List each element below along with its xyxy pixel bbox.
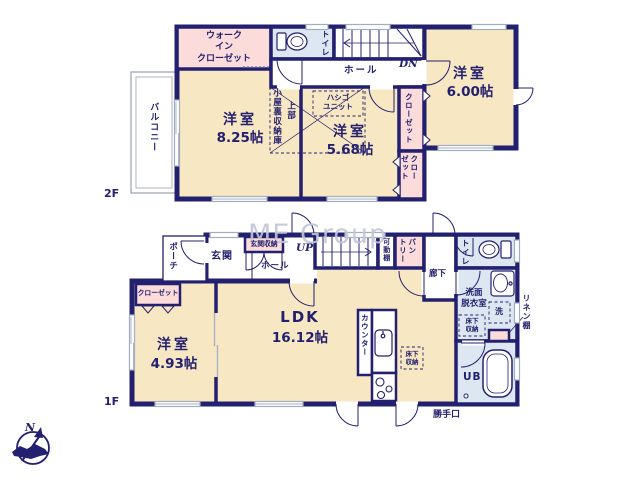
closet-lower-2f-label: クロー ゼット	[400, 155, 419, 197]
room-600-size: 6.00帖	[426, 84, 514, 101]
wic-label: ウォーク イン クローゼット	[181, 31, 267, 65]
washroom-label: 洗面 脱衣室	[455, 288, 493, 309]
counter-label: カウンター	[360, 314, 369, 372]
entrance-storage-label: 玄関収納	[246, 240, 282, 248]
attic-storage-label2: 上部	[285, 101, 296, 131]
linen-shelf	[489, 330, 509, 341]
compass-n-label: N	[24, 421, 36, 434]
pantry-label: パン トリー	[398, 238, 417, 267]
ldk-size: 16.12帖	[251, 330, 349, 347]
room-493-size: 4.93帖	[130, 356, 218, 373]
kitchen-sink-icon	[375, 330, 392, 356]
ldk-name: LDK	[256, 308, 344, 327]
floor1-label: 1F	[104, 395, 119, 409]
attic-storage-label: 小屋裏収納庫	[271, 88, 282, 152]
underfloor-wash-label: 床下 収納	[459, 317, 485, 333]
corridor	[424, 235, 456, 300]
movable-shelf-label: 可動棚	[382, 238, 391, 266]
unit-bath-label: UB	[463, 371, 482, 384]
hall-2f-label: ホール	[344, 65, 379, 77]
room-493-name: 洋室	[130, 337, 218, 355]
linen-shelf-label: リネン棚	[521, 294, 531, 352]
porch-label: ポーチ	[167, 242, 178, 278]
closet-1f-label: クローゼット	[137, 289, 179, 297]
room-568-name: 洋室	[306, 124, 394, 142]
toilet-icon-2f	[277, 33, 307, 50]
ladder-unit-label: ハシゴ ユニット	[314, 93, 362, 112]
toilet-1f-label: トイレ	[460, 239, 470, 267]
floor-plan-page: N ME Group 2F バルコニー ウォーク イン クローゼット トイレ ホ…	[0, 0, 640, 480]
room-568-size: 5.68帖	[306, 142, 394, 159]
corridor-label: 廊下	[429, 269, 446, 280]
toilet-2f-label: トイレ	[320, 30, 330, 58]
backdoor-label: 勝手口	[433, 410, 460, 421]
toilet-icon-1f	[479, 241, 511, 258]
dn-label: DN	[399, 58, 418, 71]
up-label: UP	[296, 242, 313, 255]
floor2-label: 2F	[104, 187, 119, 201]
underfloor-ldk-label: 床下 収納	[401, 350, 423, 366]
washbasin-icon	[491, 271, 514, 296]
laundry-label: 洗	[495, 307, 503, 317]
compass: N	[12, 421, 49, 464]
balcony-label: バルコニー	[147, 102, 158, 192]
entrance-label: 玄関	[211, 251, 233, 264]
closet-upper-2f-label: クローゼット	[404, 93, 413, 147]
hall-1f-label: ホール	[261, 261, 290, 272]
room-600-name: 洋室	[426, 66, 514, 84]
